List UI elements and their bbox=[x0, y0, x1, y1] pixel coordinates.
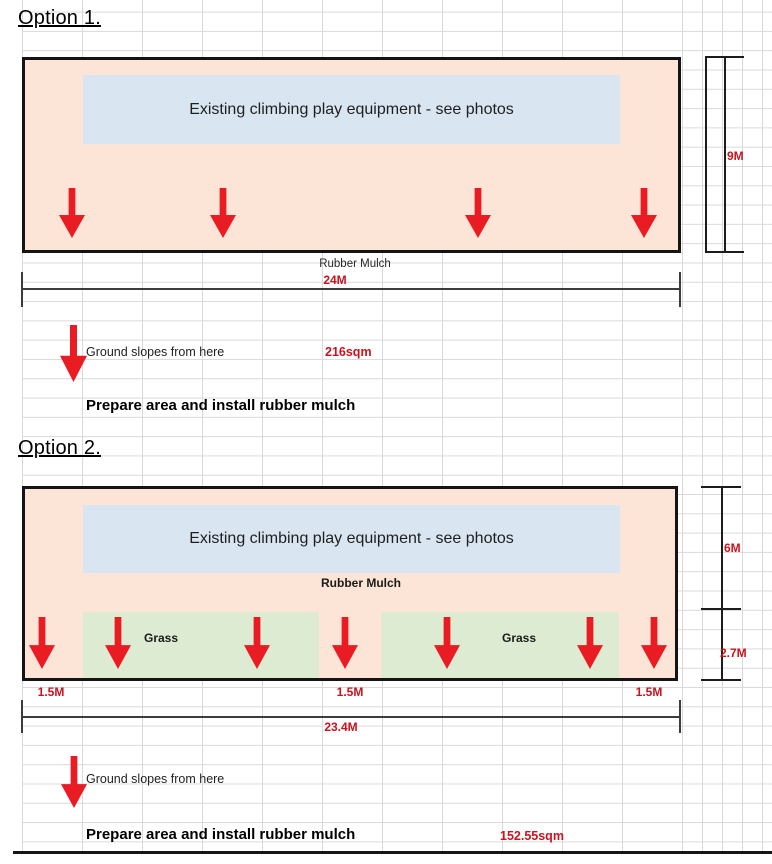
option1-area-label: 216sqm bbox=[325, 345, 372, 359]
option2-height-bracket-cap bbox=[701, 679, 741, 681]
option1-equipment-box: Existing climbing play equipment - see p… bbox=[83, 75, 620, 144]
option1-width-dim-cap bbox=[21, 272, 23, 307]
option1-width-dim-cap bbox=[679, 272, 681, 307]
option1-caption: Prepare area and install rubber mulch bbox=[86, 397, 355, 414]
option2-height-dim-upper-label: 6M bbox=[724, 541, 741, 555]
option2-equipment-label: Existing climbing play equipment - see p… bbox=[189, 530, 514, 548]
option2-area-label: 152.55sqm bbox=[500, 829, 564, 843]
option1-slope-note: Ground slopes from here bbox=[86, 345, 224, 359]
option2-title: Option 2. bbox=[18, 437, 101, 460]
option1-height-bracket-cap bbox=[705, 56, 744, 58]
option1-equipment-label: Existing climbing play equipment - see p… bbox=[189, 101, 514, 119]
option2-grass-area-right bbox=[381, 612, 619, 678]
option1-height-bracket-cap bbox=[705, 251, 744, 253]
option2-width-dim-line bbox=[22, 716, 680, 718]
option2-height-dim-lower-label: 2.7M bbox=[720, 646, 747, 660]
option1-width-dim-label: 24M bbox=[310, 273, 360, 287]
option1-rubber-mulch-label: Rubber Mulch bbox=[255, 258, 455, 270]
option2-height-bracket-cap bbox=[701, 608, 741, 610]
option2-edge-dim-label: 1.5M bbox=[627, 685, 671, 699]
option2-width-dim-label: 23.4M bbox=[311, 720, 371, 734]
option2-equipment-box: Existing climbing play equipment - see p… bbox=[83, 505, 620, 573]
option2-rubber-mulch-label: Rubber Mulch bbox=[261, 576, 461, 590]
option2-width-dim-cap bbox=[21, 700, 23, 733]
slope-arrow-icon bbox=[61, 756, 87, 808]
sheet-gridlines-right bbox=[682, 0, 772, 852]
option2-width-dim-cap bbox=[679, 700, 681, 733]
option1-title: Option 1. bbox=[18, 7, 101, 30]
option2-caption: Prepare area and install rubber mulch bbox=[86, 826, 355, 843]
spreadsheet-plan-page: { "colors": { "mulch_fill": "#fce4d6", "… bbox=[0, 0, 772, 864]
option2-grass-label-right: Grass bbox=[469, 631, 569, 645]
option1-height-dim-label: 9M bbox=[727, 149, 744, 163]
option1-height-bracket-line bbox=[724, 57, 726, 253]
option1-mulch-area: Existing climbing play equipment - see p… bbox=[22, 57, 681, 253]
option2-grass-label-left: Grass bbox=[111, 631, 211, 645]
option2-height-bracket-cap bbox=[701, 486, 741, 488]
option2-slope-note: Ground slopes from here bbox=[86, 772, 224, 786]
sheet-bottom-border bbox=[13, 851, 772, 854]
slope-arrow-icon bbox=[60, 325, 87, 382]
option1-height-bracket-line bbox=[705, 57, 707, 253]
option2-edge-dim-label: 1.5M bbox=[29, 685, 73, 699]
option1-width-dim-line bbox=[22, 288, 681, 290]
option2-edge-dim-label: 1.5M bbox=[328, 685, 372, 699]
